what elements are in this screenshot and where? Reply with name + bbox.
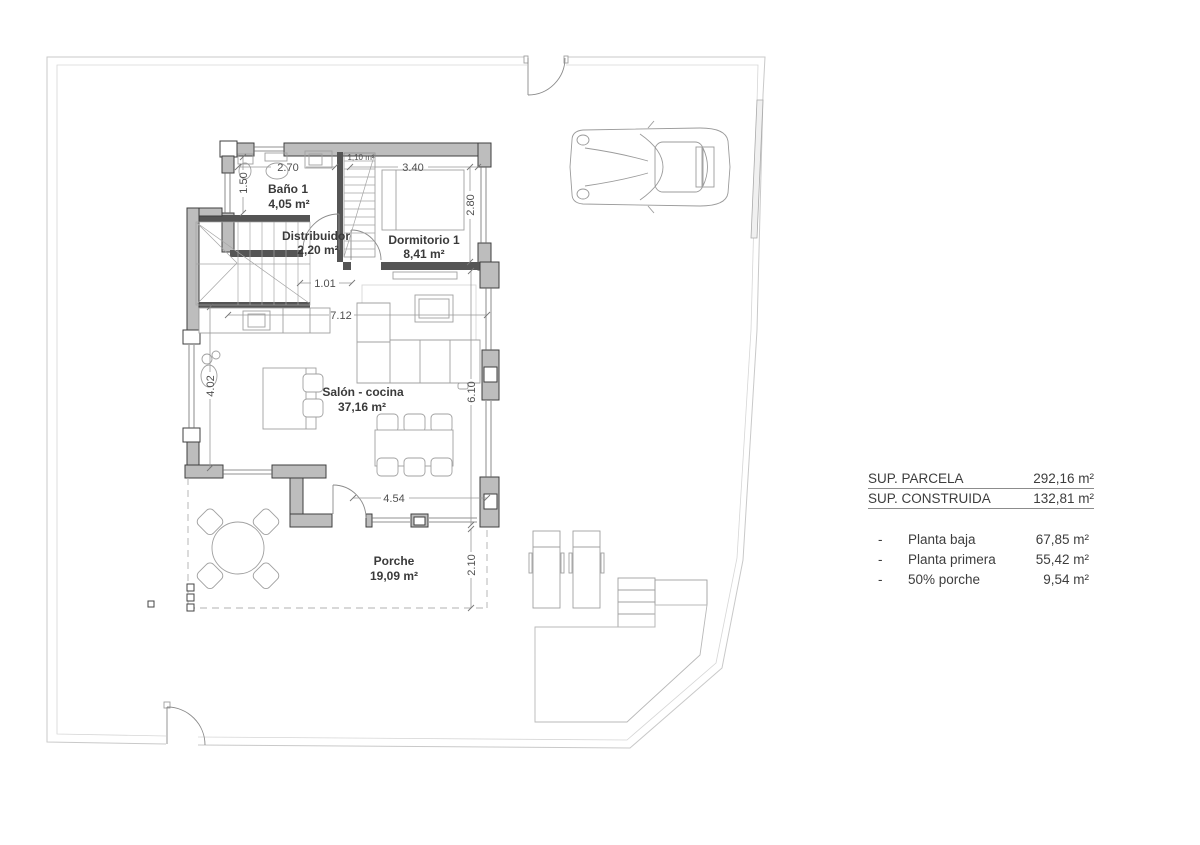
room-label-distribuidor: Distribuidor	[282, 229, 350, 243]
parcel-boundary	[47, 56, 765, 748]
room-area-porche: 19,09 m²	[370, 569, 418, 583]
coffee-table	[415, 295, 453, 322]
summary-label: SUP. CONSTRUIDA	[868, 489, 991, 508]
floor-plan-page: Baño 1 4,05 m² Distribuidor 2,20 m² Dorm…	[0, 0, 1200, 845]
porch-table-set	[195, 507, 281, 591]
summary-bullet: -	[868, 530, 908, 550]
sofa	[357, 303, 480, 389]
summary-item-value: 67,85 m²	[1009, 530, 1089, 550]
bedroom-door	[351, 230, 381, 260]
summary-item-label: 50% porche	[908, 570, 1009, 590]
dining-set	[375, 414, 453, 476]
room-label-salon: Salón - cocina	[322, 385, 404, 399]
summary-item-label: Planta primera	[908, 550, 1009, 570]
room-label-dormitorio: Dormitorio 1	[388, 233, 460, 247]
summary-row: SUP. CONSTRUIDA 132,81 m²	[868, 489, 1094, 509]
dim-salon-window-left: 4.02	[205, 375, 217, 396]
summary-item-value: 9,54 m²	[1009, 570, 1089, 590]
dim-hall-width: 1.01	[314, 278, 335, 290]
summary-table: SUP. PARCELA 292,16 m² SUP. CONSTRUIDA 1…	[868, 469, 1094, 590]
room-area-salon: 37,16 m²	[338, 400, 386, 414]
courtyard-outline	[535, 605, 707, 722]
dim-dorm-depth: 2.80	[465, 194, 477, 215]
summary-bullet: -	[868, 570, 908, 590]
summary-item: - Planta primera 55,42 m²	[868, 550, 1094, 570]
kitchen-island	[263, 368, 323, 429]
dim-bano-width: 2.70	[277, 162, 298, 174]
room-area-bano: 4,05 m²	[268, 197, 309, 211]
garden-steps	[618, 578, 707, 627]
living-room-furniture	[357, 272, 480, 476]
gate-bottom	[164, 702, 205, 745]
garden-marker	[148, 601, 154, 607]
room-area-dormitorio: 8,41 m²	[403, 247, 444, 261]
floor-plan-drawing: Baño 1 4,05 m² Distribuidor 2,20 m² Dorm…	[0, 0, 1200, 845]
stair-area-label: 1,10 m²	[347, 153, 374, 162]
summary-item-value: 55,42 m²	[1009, 550, 1089, 570]
dim-dorm-width: 3.40	[402, 162, 423, 174]
porch-markers	[187, 584, 194, 611]
dim-bano-window: 1.50	[238, 172, 250, 193]
summary-value: 132,81 m²	[1033, 489, 1094, 508]
room-area-distribuidor: 2,20 m²	[297, 243, 338, 257]
summary-item: - Planta baja 67,85 m²	[868, 530, 1094, 550]
summary-bullet: -	[868, 550, 908, 570]
dim-salon-width: 7.12	[330, 310, 351, 322]
summary-spacer	[868, 509, 1094, 530]
sun-lounger	[529, 531, 564, 608]
kitchen	[199, 308, 330, 429]
sun-lounger	[569, 531, 604, 608]
dim-porch-width: 4.54	[383, 493, 404, 505]
gate-top	[524, 56, 568, 95]
dim-salon-window-right: 6.10	[466, 381, 478, 402]
tv-sideboard	[393, 272, 457, 279]
summary-label: SUP. PARCELA	[868, 469, 964, 488]
summary-value: 292,16 m²	[1033, 469, 1094, 488]
entrance-door	[333, 485, 366, 518]
car-top-view	[570, 121, 730, 213]
summary-row: SUP. PARCELA 292,16 m²	[868, 469, 1094, 489]
room-label-porche: Porche	[374, 554, 415, 568]
dim-porch-depth: 2.10	[466, 554, 478, 575]
summary-item: - 50% porche 9,54 m²	[868, 570, 1094, 590]
bed	[382, 170, 464, 230]
summary-item-label: Planta baja	[908, 530, 1009, 550]
room-label-bano: Baño 1	[268, 182, 308, 196]
